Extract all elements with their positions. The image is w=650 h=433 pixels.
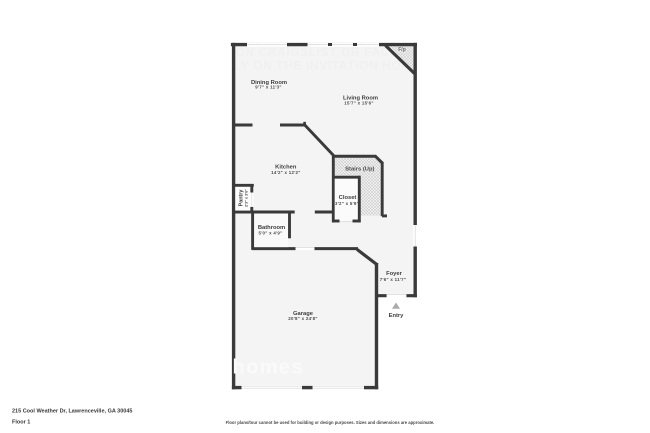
svg-text:Entry: Entry <box>389 313 405 319</box>
svg-text:14'2" x 12'2": 14'2" x 12'2" <box>271 170 300 175</box>
svg-text:ONLY ON THE INVITATION HOMES: ONLY ON THE INVITATION HOMES <box>215 59 429 73</box>
svg-text:2'3" x 3'6": 2'3" x 3'6" <box>245 189 249 207</box>
svg-text:5'0" x 4'9": 5'0" x 4'9" <box>259 230 283 235</box>
svg-text:15'7" x 15'6": 15'7" x 15'6" <box>344 101 373 106</box>
svg-text:homes: homes <box>233 357 304 379</box>
svg-text:3'2" x 5'9": 3'2" x 5'9" <box>335 201 359 206</box>
svg-text:20'8" x 24'8": 20'8" x 24'8" <box>288 316 317 321</box>
svg-text:F/p: F/p <box>398 47 406 53</box>
svg-text:Pantry: Pantry <box>238 190 244 207</box>
svg-text:Stairs (Up): Stairs (Up) <box>345 166 374 172</box>
svg-text:Foyer: Foyer <box>386 271 403 277</box>
svg-text:9'7" x 11'3": 9'7" x 11'3" <box>255 85 281 90</box>
svg-text:7'6" x 11'7": 7'6" x 11'7" <box>380 277 406 282</box>
svg-text:Floor 1: Floor 1 <box>12 420 30 426</box>
svg-text:Floor plans/tour cannot be use: Floor plans/tour cannot be used for buil… <box>226 420 435 425</box>
svg-text:215 Cool Weather Dr, Lawrencev: 215 Cool Weather Dr, Lawrenceville, GA 3… <box>12 408 132 414</box>
